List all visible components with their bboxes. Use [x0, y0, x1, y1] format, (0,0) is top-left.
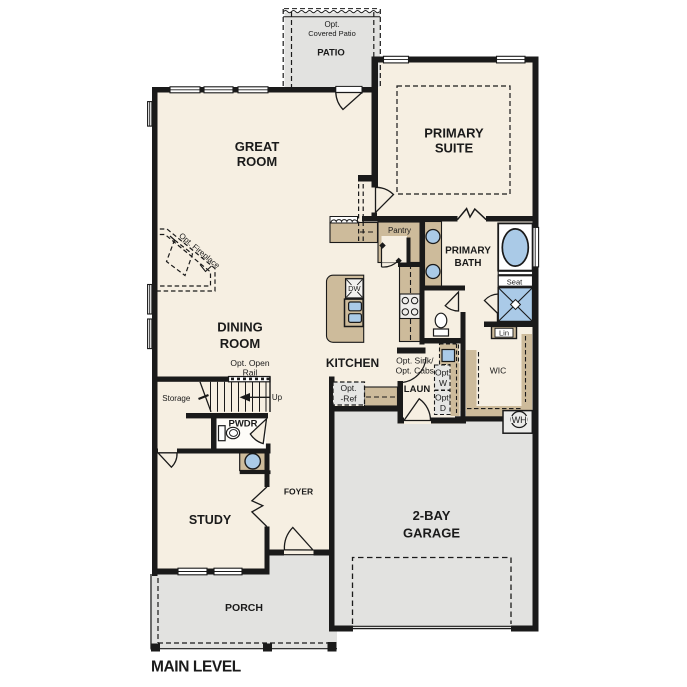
svg-text:PWDR: PWDR	[228, 418, 257, 429]
svg-text:SUITE: SUITE	[435, 141, 474, 156]
svg-text:Up: Up	[272, 393, 283, 402]
svg-text:ROOM: ROOM	[237, 154, 277, 169]
svg-text:KITCHEN: KITCHEN	[326, 356, 379, 370]
svg-text:WH: WH	[512, 415, 527, 425]
svg-text:Pantry: Pantry	[388, 226, 411, 235]
svg-text:LAUN: LAUN	[404, 384, 431, 395]
svg-text:Opt.: Opt.	[435, 368, 451, 378]
svg-text:Opt. Sink/: Opt. Sink/	[396, 356, 434, 366]
svg-text:ROOM: ROOM	[220, 336, 260, 351]
svg-text:PORCH: PORCH	[225, 602, 263, 614]
svg-text:PATIO: PATIO	[317, 48, 345, 59]
svg-text:Rail: Rail	[243, 368, 258, 378]
svg-text:DINING: DINING	[217, 320, 263, 335]
svg-text:DW: DW	[348, 284, 361, 293]
svg-text:Opt.: Opt.	[340, 383, 356, 393]
svg-text:W: W	[439, 378, 447, 388]
svg-text:D: D	[440, 403, 446, 413]
svg-text:Storage: Storage	[162, 394, 191, 403]
svg-text:MAIN LEVEL: MAIN LEVEL	[151, 659, 241, 676]
svg-text:Opt. Open: Opt. Open	[230, 358, 269, 368]
svg-text:WIC: WIC	[490, 366, 507, 376]
svg-text:GARAGE: GARAGE	[403, 526, 460, 541]
svg-text:Opt. Cabs: Opt. Cabs	[396, 366, 434, 376]
svg-text:STUDY: STUDY	[189, 513, 232, 527]
svg-text:Opt.: Opt.	[324, 20, 339, 29]
svg-text:BATH: BATH	[454, 258, 481, 269]
svg-text:Seat: Seat	[507, 278, 523, 287]
svg-text:GREAT: GREAT	[235, 139, 280, 154]
svg-text:PRIMARY: PRIMARY	[424, 126, 484, 141]
svg-text:-Ref: -Ref	[340, 393, 357, 403]
svg-text:PRIMARY: PRIMARY	[445, 246, 491, 257]
svg-text:FOYER: FOYER	[284, 487, 313, 497]
svg-text:Opt.: Opt.	[435, 393, 451, 403]
svg-text:Covered Patio: Covered Patio	[308, 29, 356, 38]
svg-text:2-BAY: 2-BAY	[413, 508, 451, 523]
svg-text:Lin: Lin	[499, 329, 509, 338]
